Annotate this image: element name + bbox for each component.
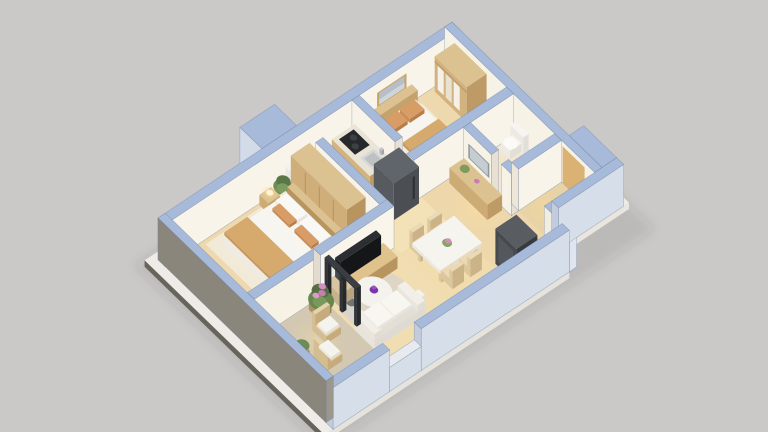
glass-post-3 [354,286,361,327]
floorplan-3d-render [0,0,768,432]
fridge-handle [413,176,415,200]
floorplan-stage [0,0,768,432]
